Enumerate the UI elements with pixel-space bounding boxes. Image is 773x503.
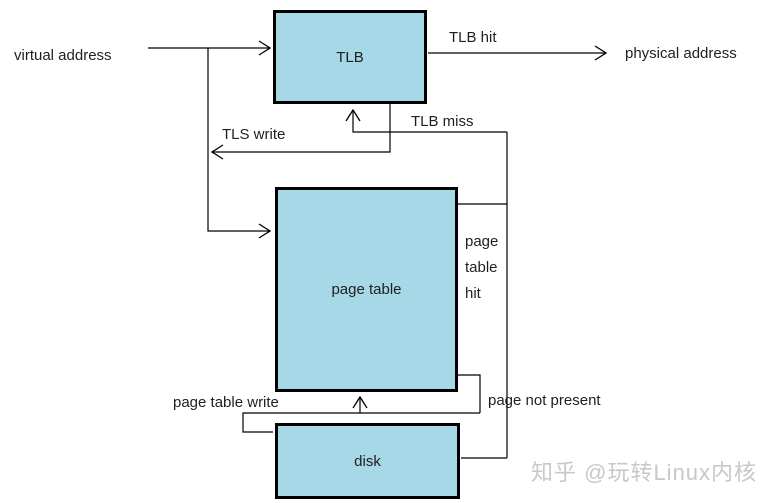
tlb-miss-label: TLB miss [411, 113, 474, 130]
tlb-hit-label: TLB hit [449, 29, 497, 46]
page-table-hit-label-line2: table [465, 255, 498, 281]
page-table-hit-label-line3: hit [465, 281, 498, 307]
tlb-box-label: TLB [336, 49, 364, 66]
page-table-hit-label: page table hit [465, 229, 498, 307]
page-table-write-label: page table write [173, 394, 279, 411]
zhihu-watermark: 知乎 @玩转Linux内核 [531, 455, 757, 487]
virtual-address-label: virtual address [14, 47, 112, 64]
page-not-present-label: page not present [488, 392, 601, 409]
page-table-box: page table [275, 187, 458, 392]
page-table-hit-label-line1: page [465, 229, 498, 255]
disk-box-label: disk [354, 453, 381, 470]
disk-box: disk [275, 423, 460, 499]
physical-address-label: physical address [625, 45, 737, 62]
diagram-canvas: TLB page table disk virtual address TLB … [0, 0, 773, 503]
tls-write-label: TLS write [222, 126, 285, 143]
tlb-box: TLB [273, 10, 427, 104]
edge-page-not-present-out [458, 375, 480, 413]
page-table-box-label: page table [331, 281, 401, 298]
